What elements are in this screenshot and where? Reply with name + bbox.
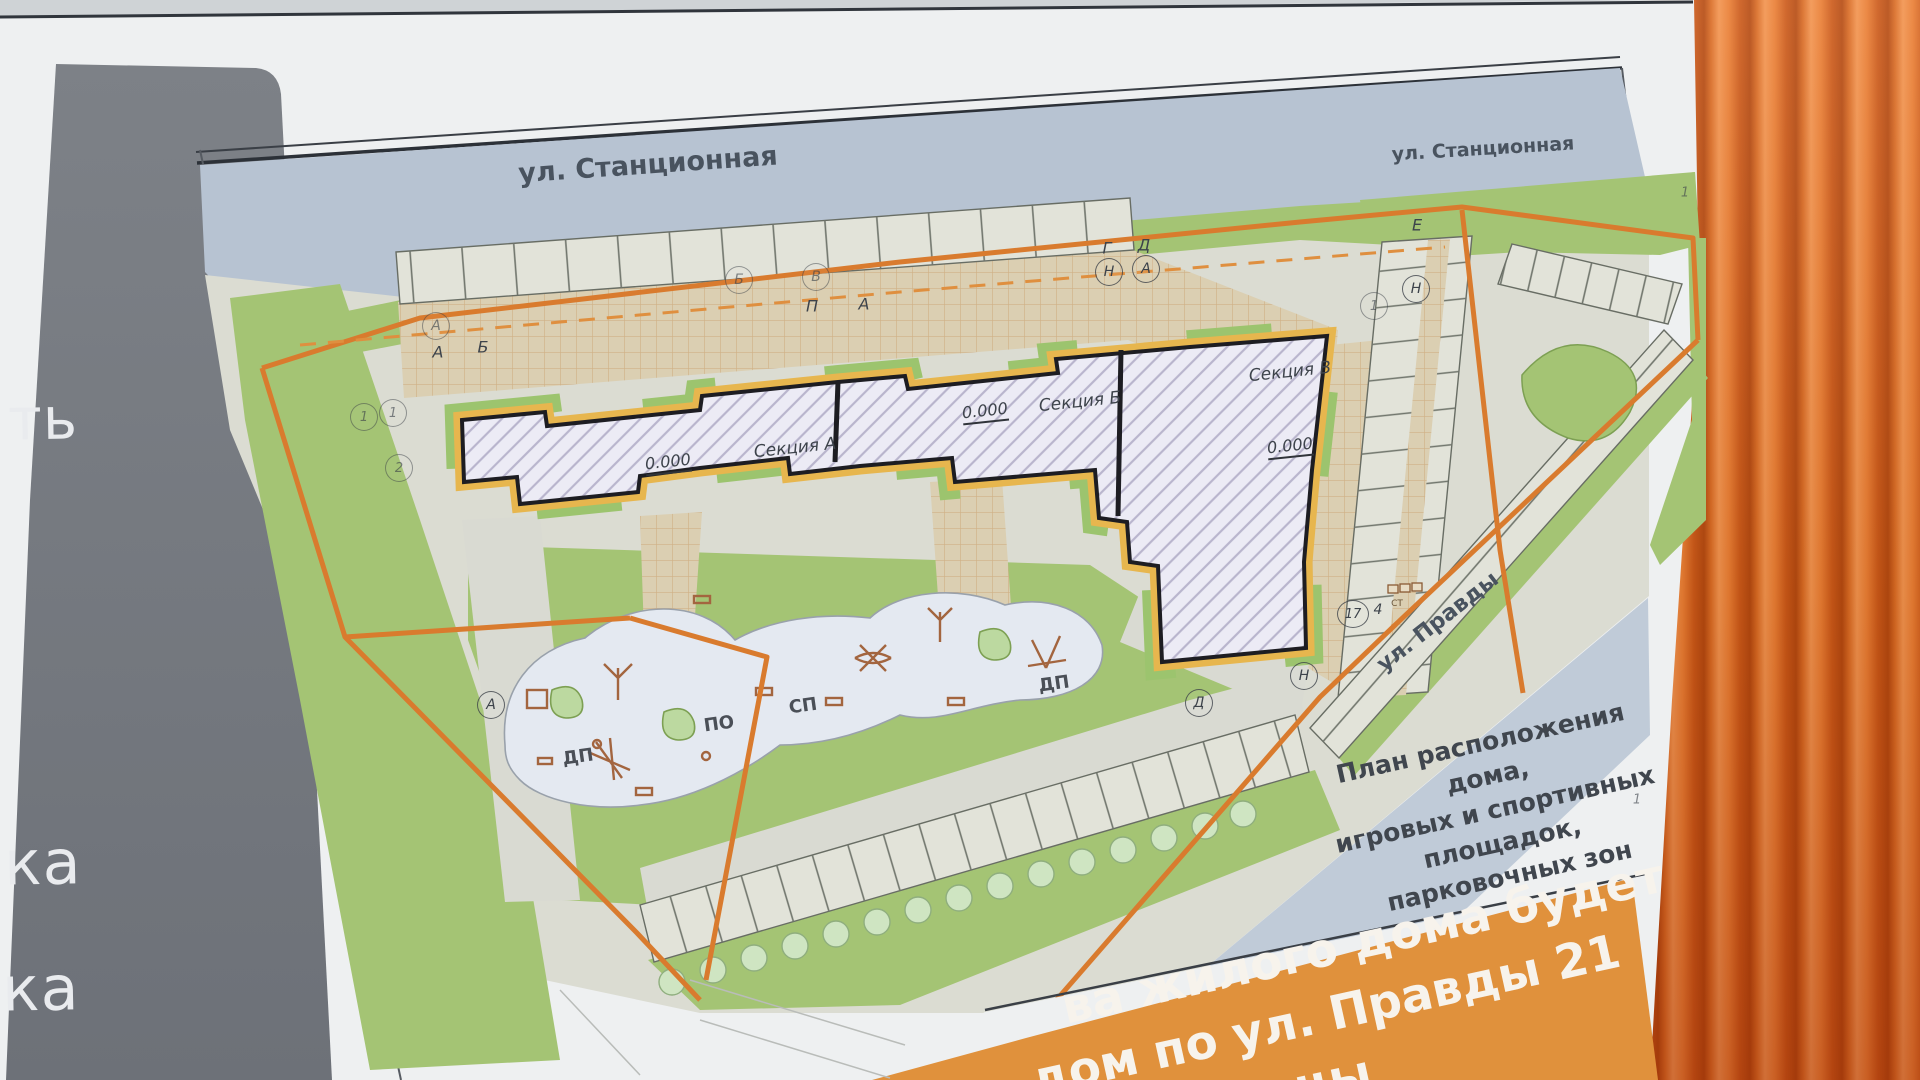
panel-text-fragment-2: ка — [3, 825, 82, 899]
axis-b2-circled: Б — [725, 266, 753, 294]
axis-a-plain: А — [433, 343, 444, 362]
axis-d: Д — [1138, 236, 1151, 255]
axis-n-circled: Н — [1095, 258, 1123, 286]
axis-a2: А — [859, 295, 870, 314]
technical-st-label: СТ — [1391, 599, 1403, 609]
zone-dp2-label: ДП — [1037, 671, 1071, 696]
axis-n2-circled: Н — [1402, 275, 1430, 303]
num-2-circled: 2 — [385, 454, 413, 482]
section-divider-bv — [1118, 350, 1121, 516]
axis-4: 4 — [1374, 602, 1383, 618]
axis-g: Г — [1103, 239, 1112, 258]
axis-a-circled: А — [422, 312, 450, 340]
zone-po-label: ПО — [702, 711, 735, 736]
num-1a-circled: 1 — [350, 403, 378, 431]
num-1r-circled: 1 — [1360, 292, 1388, 320]
num-1b-circled: 1 — [379, 399, 407, 427]
axis-a3-circled: А — [1132, 255, 1160, 283]
axis-b-plain: Б — [478, 338, 489, 357]
photo-of-site-plan-billboard: { "plan": { "street_left": "ул. Станцион… — [0, 0, 1920, 1080]
num-17-circled: 17 — [1337, 600, 1369, 628]
axis-v-circled: В — [802, 263, 830, 291]
tick-mark-1: 1 — [1681, 186, 1689, 201]
panel-text-fragment-3: ка — [1, 951, 80, 1025]
axis-e: Е — [1412, 216, 1422, 235]
zone-dp1-label: ДП — [561, 744, 595, 769]
zone-sp-label: СП — [788, 694, 819, 719]
road-n-circled: Н — [1290, 662, 1318, 690]
axis-p: П — [806, 297, 818, 316]
technical-icon-st — [1388, 583, 1422, 593]
panel-text-fragment-1: ть — [7, 384, 78, 453]
road-a-circled: А — [477, 691, 505, 719]
road-d-circled: Д — [1185, 689, 1213, 717]
